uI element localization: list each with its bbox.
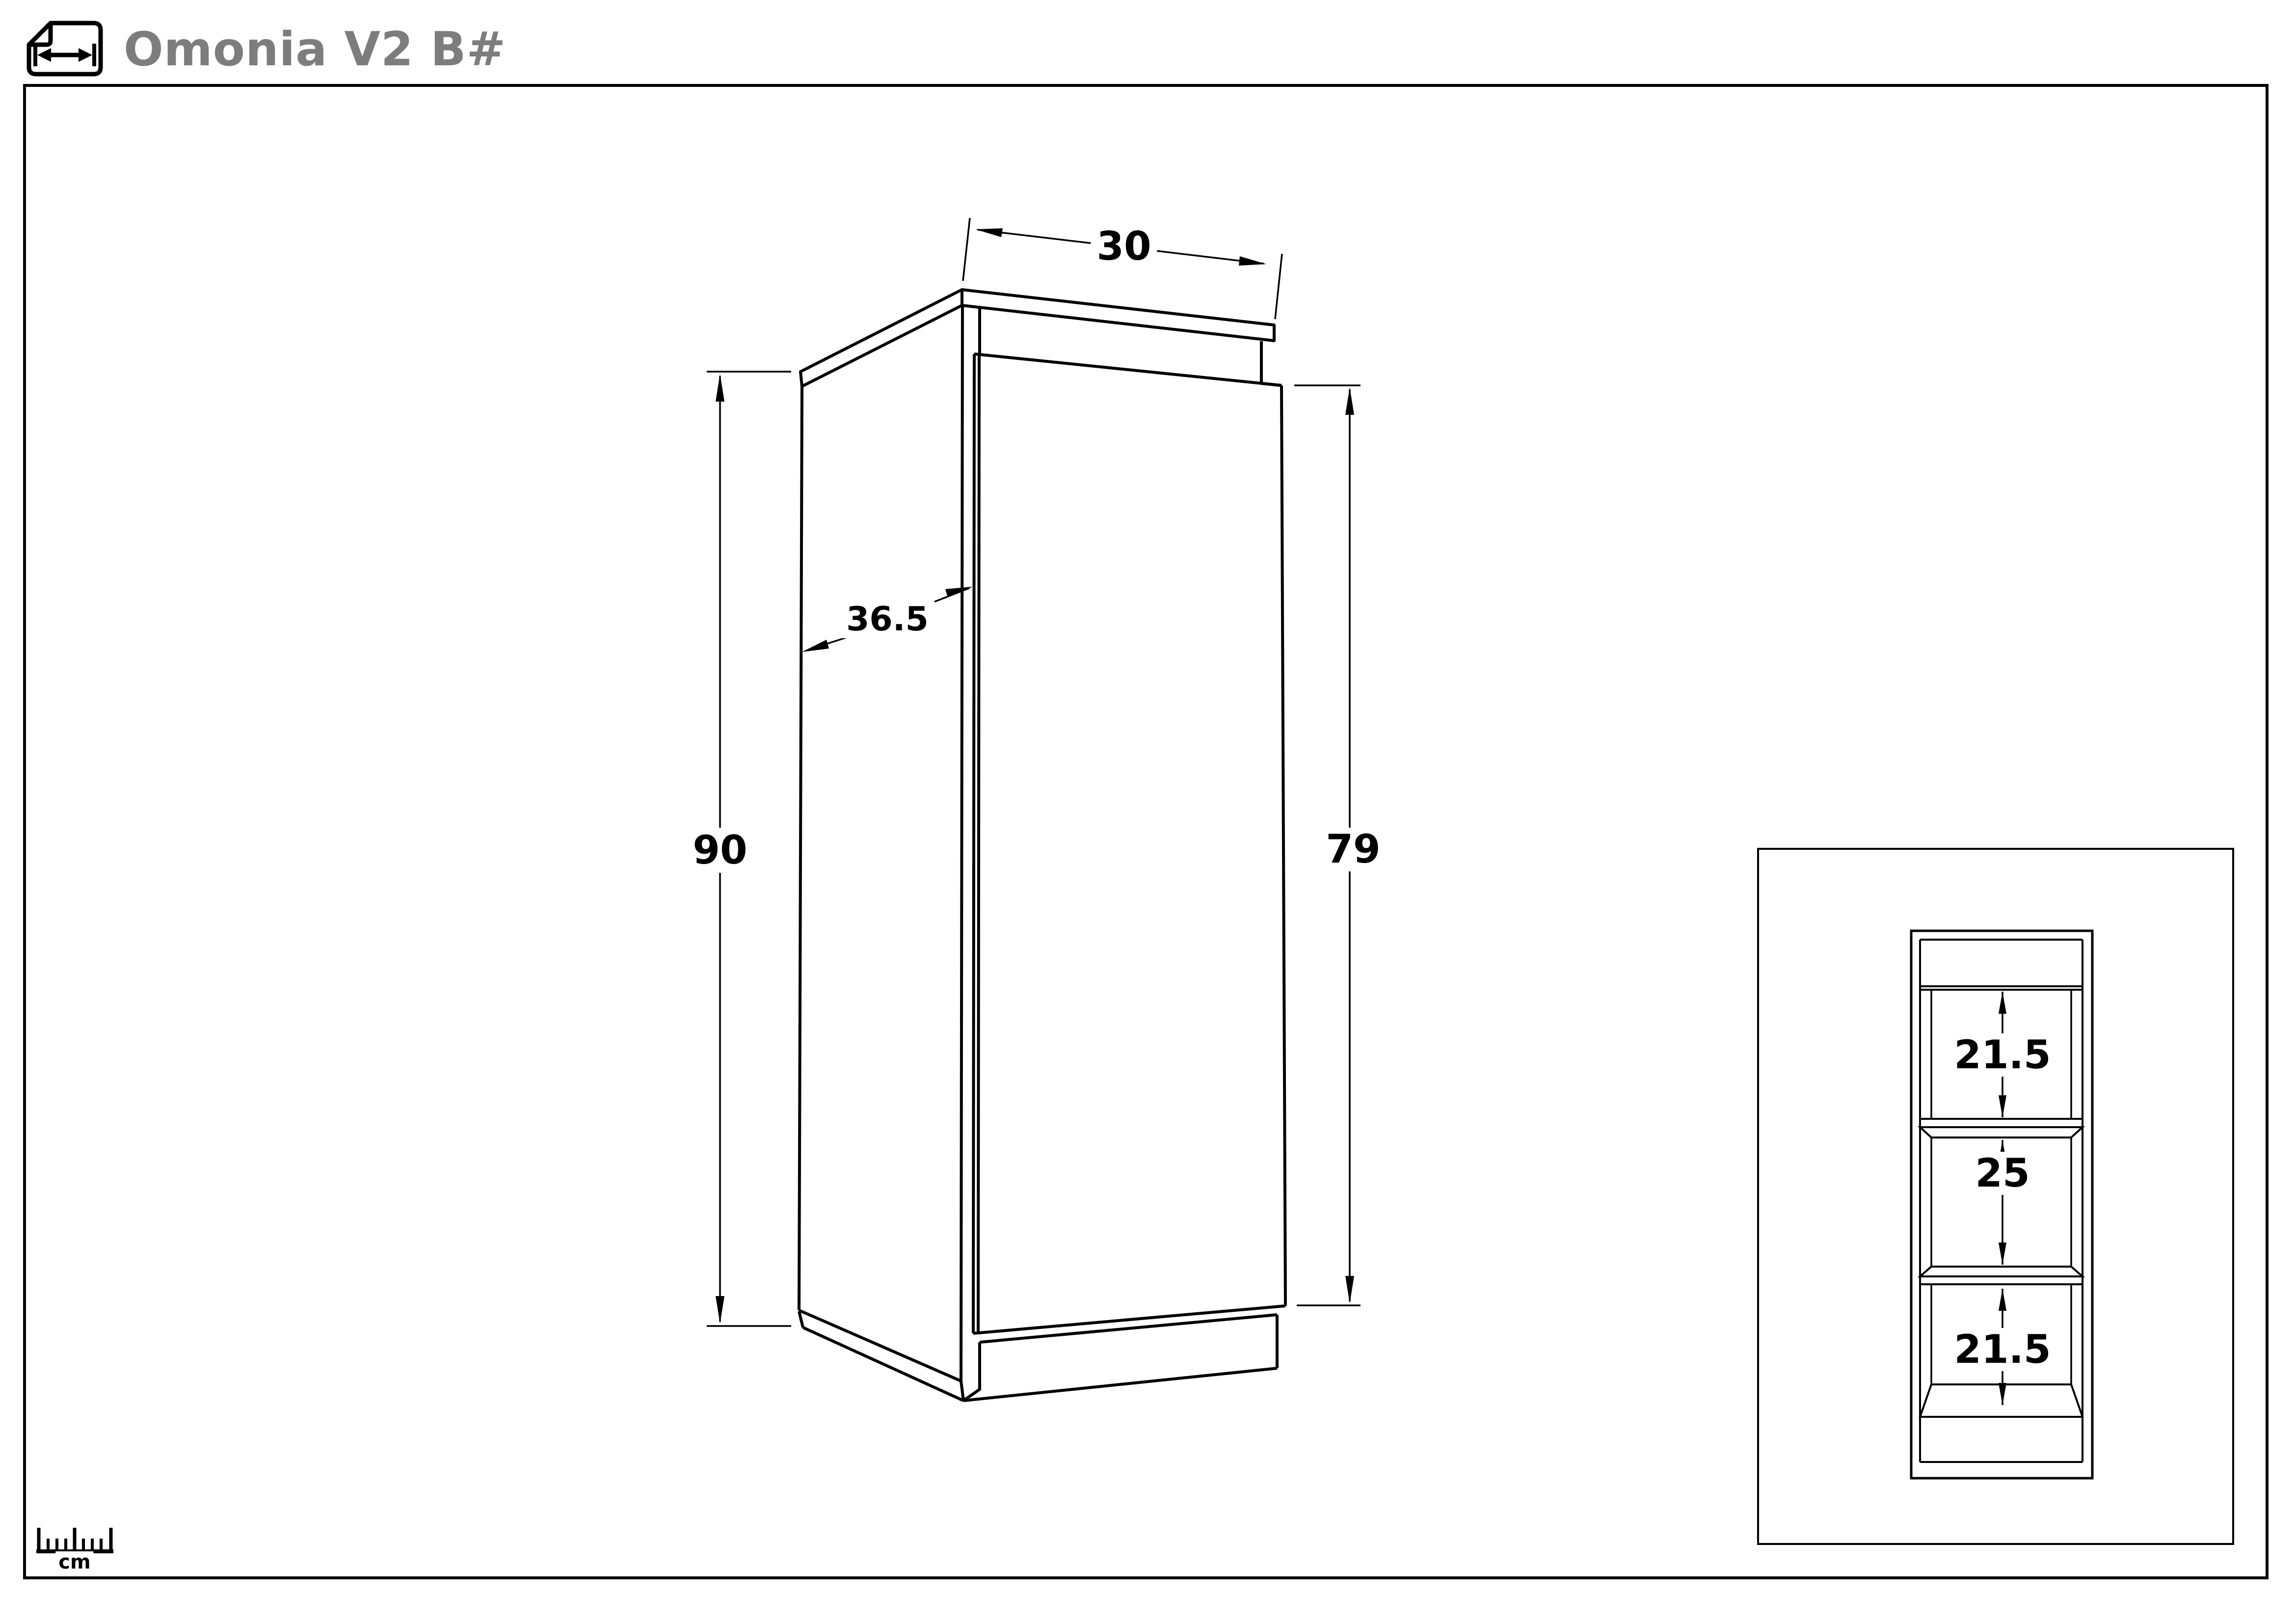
plinth-left-edge — [963, 1342, 980, 1401]
iso-cabinet — [799, 290, 1285, 1401]
detail-shelf2-front — [1920, 1276, 2082, 1284]
width-arrow-left — [975, 228, 1003, 237]
detail-middle-gap-label: 25 — [1969, 1152, 2035, 1195]
base-bottom-side-edge — [803, 1327, 963, 1401]
base-front-corner — [961, 1381, 963, 1401]
height-arrow-bottom — [716, 1296, 724, 1324]
depth-arrow-left — [802, 640, 829, 652]
side-panel-back-edge — [799, 386, 802, 1310]
height-dim-label: 90 — [687, 829, 753, 872]
door-edge-outer — [973, 354, 974, 1333]
detail-shelf2-top — [1920, 1267, 2082, 1276]
page-title: Omonia V2 B# — [124, 26, 506, 75]
detail-bottom-gap-label: 21.5 — [1948, 1328, 2056, 1371]
door-arrow-top — [1345, 387, 1354, 415]
door-right-edge — [1281, 385, 1285, 1306]
measure-arrow-right — [79, 48, 92, 62]
side-panel-bottom-edge — [799, 1310, 961, 1381]
width-ext-right — [1275, 254, 1282, 319]
base-back-corner — [799, 1311, 803, 1327]
detail-dim3-arrow-up — [1999, 1289, 2006, 1311]
depth-arrow-right — [945, 587, 973, 597]
measure-arrow-left — [37, 48, 51, 62]
door-arrow-bottom — [1345, 1276, 1354, 1303]
depth-dim-label: 36.5 — [840, 601, 934, 638]
detail-shelf1-underside — [1920, 1127, 2082, 1137]
base-bottom-front-edge — [963, 1368, 1277, 1401]
door-height-dim-label: 79 — [1320, 828, 1386, 871]
height-arrow-top — [716, 374, 724, 402]
width-dim-label: 30 — [1091, 225, 1157, 268]
ruler-icon — [36, 1528, 113, 1551]
detail-view — [1758, 849, 2233, 1544]
detail-box-border — [1758, 849, 2233, 1544]
detail-dim1-arrow-up — [1999, 992, 2006, 1014]
drawing-page: Omonia V2 B# 30 36.5 90 79 21.5 25 21.5 … — [0, 0, 2296, 1624]
top-panel-front — [962, 290, 1274, 341]
width-arrow-right — [1239, 256, 1266, 266]
sheet-outline — [29, 23, 101, 74]
door-top-edge — [974, 354, 1281, 385]
carcass-front-left-edge — [961, 305, 962, 1381]
detail-dim1-arrow-down — [1999, 1095, 2006, 1117]
unit-label: cm — [55, 1551, 93, 1573]
door-edge-inner — [978, 354, 979, 1334]
width-ext-left — [963, 218, 970, 281]
detail-top-gap-label: 21.5 — [1948, 1033, 2056, 1077]
top-panel-side — [801, 290, 962, 386]
detail-shelf1-front — [1920, 1119, 2082, 1127]
detail-dim2-arrow-down — [1999, 1243, 2006, 1265]
dimension-sheet-icon — [29, 23, 101, 74]
